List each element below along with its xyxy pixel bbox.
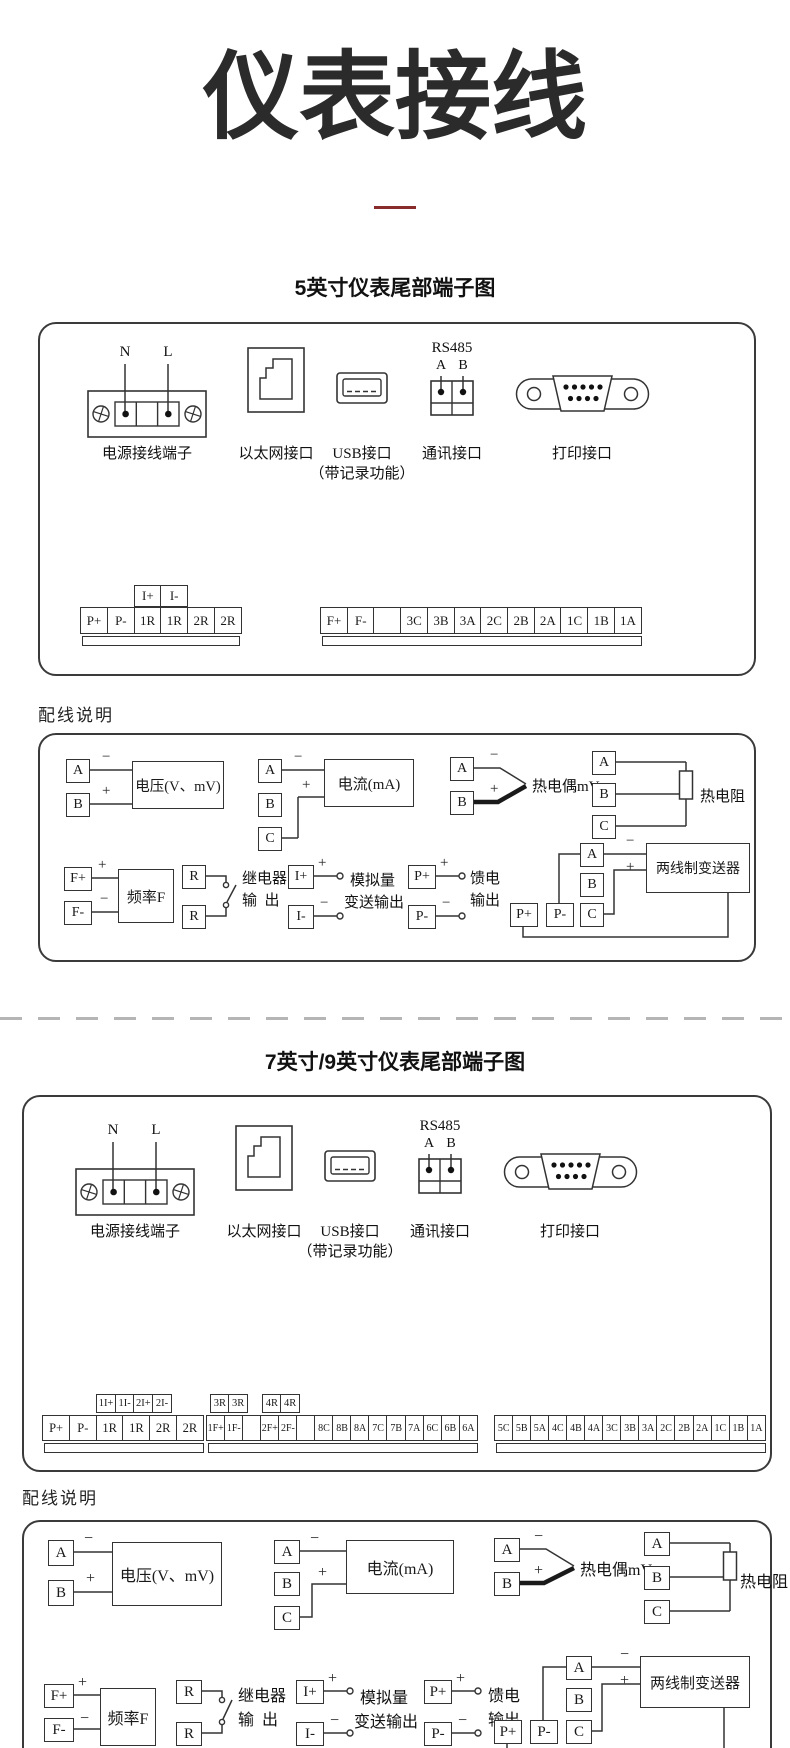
terminal-strip-base xyxy=(496,1443,766,1453)
wiring-terminal: A xyxy=(450,757,474,781)
terminal-cell: 3C xyxy=(602,1415,621,1441)
terminal-cell: P- xyxy=(69,1415,97,1441)
terminal-cell: 7B xyxy=(386,1415,405,1441)
terminal-cell: 2A xyxy=(534,607,562,634)
minus-sign: − xyxy=(294,749,302,766)
usb-label: USB接口 xyxy=(327,442,397,463)
wiring-terminal: F+ xyxy=(64,867,92,891)
terminal-cell: 2F- xyxy=(278,1415,297,1441)
db9-print-port-icon xyxy=(503,1148,638,1194)
usb-label: USB接口 xyxy=(315,1220,385,1241)
print-label: 打印接口 xyxy=(532,442,632,463)
wiring-terminal: B xyxy=(566,1688,592,1712)
ethernet-label: 以太网接口 xyxy=(226,442,326,463)
plus-sign: + xyxy=(102,783,110,800)
terminal-cell: 2B xyxy=(507,607,535,634)
power-l-label: L xyxy=(136,1122,176,1139)
plus-sign: + xyxy=(440,855,448,872)
wiring-terminal: C xyxy=(566,1720,592,1744)
terminal-cell: 8A xyxy=(350,1415,369,1441)
terminal-panel-5inch: N L RS485 A xyxy=(38,322,756,676)
usb-port-icon xyxy=(324,1150,376,1182)
thermocouple-label: 热电偶mV xyxy=(532,775,600,796)
terminal-cell: 6A xyxy=(459,1415,478,1441)
terminal-cell: 8C xyxy=(314,1415,333,1441)
terminal-cell: 5C xyxy=(494,1415,513,1441)
terminal-cell: 1F- xyxy=(224,1415,243,1441)
terminal-cell: 6C xyxy=(423,1415,442,1441)
plus-sign: + xyxy=(490,781,498,798)
plus-sign: + xyxy=(302,777,310,794)
db9-print-port-icon xyxy=(515,370,650,416)
minus-sign: − xyxy=(534,1528,543,1546)
terminal-cell: 2C xyxy=(480,607,508,634)
power-n-label: N xyxy=(105,344,145,361)
power-terminal-icon xyxy=(87,390,207,438)
terminal-cell: 4R xyxy=(280,1394,300,1413)
minus-sign: − xyxy=(458,1712,467,1730)
relay-label-line1: 继电器 xyxy=(242,867,287,888)
section-5inch-title: 5英寸仪表尾部端子图 xyxy=(0,272,790,302)
wiring-terminal: I- xyxy=(296,1722,324,1746)
terminal-row-current-loop: 1I+1I-2I+2I- xyxy=(96,1394,172,1413)
terminal-cell: 1R xyxy=(96,1415,124,1441)
wiring-terminal: P+ xyxy=(408,865,436,889)
minus-sign: − xyxy=(320,895,328,912)
ethernet-port-icon xyxy=(235,1125,293,1191)
plus-sign: + xyxy=(534,1562,543,1580)
terminal-cell: 7C xyxy=(368,1415,387,1441)
section-divider xyxy=(0,1017,790,1020)
terminal-cell: 1R xyxy=(160,607,188,634)
wiring-terminal: B xyxy=(580,873,604,897)
terminal-cell: 2I- xyxy=(152,1394,172,1413)
wiring-terminal: P- xyxy=(408,905,436,929)
section-79inch-title: 7英寸/9英寸仪表尾部端子图 xyxy=(0,1046,790,1076)
terminal-cell: 8B xyxy=(332,1415,351,1441)
minus-sign: − xyxy=(102,749,110,766)
ethernet-port-icon xyxy=(247,347,305,413)
analog-label-line2: 变送输出 xyxy=(354,1708,418,1732)
terminal-strip-2: 1F+1F-2F+2F-8C8B8A7C7B7A6C6B6A xyxy=(206,1415,478,1441)
wiring-terminal: B xyxy=(258,793,282,817)
terminal-cell: 1R xyxy=(122,1415,150,1441)
current-box: 电流(mA) xyxy=(346,1540,454,1594)
ethernet-label: 以太网接口 xyxy=(214,1220,314,1241)
plus-sign: + xyxy=(456,1670,465,1688)
terminal-cell: 1B xyxy=(587,607,615,634)
transmitter-box: 两线制变送器 xyxy=(646,843,750,893)
connector-row-5inch: N L RS485 A xyxy=(42,336,752,486)
terminal-row-relay3: 3R3R xyxy=(210,1394,248,1413)
terminal-cell: 7A xyxy=(405,1415,424,1441)
minus-sign: − xyxy=(80,1710,89,1728)
plus-sign: + xyxy=(86,1570,95,1588)
plus-sign: + xyxy=(78,1674,87,1692)
terminal-cell: 1I- xyxy=(115,1394,135,1413)
analog-label-line1: 模拟量 xyxy=(360,1684,408,1708)
wiring-terminal: B xyxy=(592,783,616,807)
terminal-cell: P- xyxy=(107,607,135,634)
analog-label-line2: 变送输出 xyxy=(344,891,404,912)
plus-sign: + xyxy=(626,859,634,876)
terminal-cell: 1I+ xyxy=(96,1394,116,1413)
wiring-terminal: F- xyxy=(64,901,92,925)
wiring-terminal: P- xyxy=(424,1722,452,1746)
terminal-cell: 2R xyxy=(187,607,215,634)
terminal-cell: 1B xyxy=(729,1415,748,1441)
wiring-terminal: R xyxy=(182,905,206,929)
document-page: 仪表接线 5英寸仪表尾部端子图 N L xyxy=(0,0,790,1748)
terminal-cell xyxy=(296,1415,315,1441)
terminal-strip-base xyxy=(44,1443,204,1453)
wiring-terminal: B xyxy=(450,791,474,815)
terminal-cell: 3B xyxy=(620,1415,639,1441)
wiring-terminal: A xyxy=(274,1540,300,1564)
usb-sublabel: （带记录功能） xyxy=(297,462,427,483)
terminal-cell: 5B xyxy=(512,1415,531,1441)
rs485-title: RS485 xyxy=(417,340,487,357)
feed-label-line2: 输出 xyxy=(470,889,500,910)
wiring-terminal: F+ xyxy=(44,1684,74,1708)
terminal-cell: 4B xyxy=(566,1415,585,1441)
terminal-cell: P+ xyxy=(80,607,108,634)
terminal-cell: I+ xyxy=(134,585,162,607)
terminal-cell: 3R xyxy=(210,1394,230,1413)
frequency-box: 频率F xyxy=(118,869,174,923)
plus-sign: + xyxy=(98,857,106,874)
terminal-cell: 1R xyxy=(134,607,162,634)
wiring-terminal: B xyxy=(644,1566,670,1590)
wiring-terminal: C xyxy=(644,1600,670,1624)
terminal-cell: 3C xyxy=(400,607,428,634)
wiring-terminal: P+ xyxy=(494,1720,522,1744)
rs485-terminal-icon xyxy=(418,1158,462,1194)
wiring-terminal: A xyxy=(592,751,616,775)
wiring-terminal: P+ xyxy=(510,903,538,927)
plus-sign: + xyxy=(318,855,326,872)
power-terminal-label: 电源接线端子 xyxy=(77,442,217,463)
voltage-box: 电压(V、mV) xyxy=(132,761,224,809)
minus-sign: − xyxy=(310,1530,319,1548)
relay-label-line2: 输 出 xyxy=(238,1706,278,1730)
terminal-cell: 4A xyxy=(584,1415,603,1441)
plus-sign: + xyxy=(328,1670,337,1688)
wiring-terminal: A xyxy=(494,1538,520,1562)
power-l-label: L xyxy=(148,344,188,361)
wiring-terminal: C xyxy=(274,1606,300,1630)
wiring-terminal: A xyxy=(644,1532,670,1556)
terminal-cell: 1C xyxy=(711,1415,730,1441)
wiring-terminal: I+ xyxy=(296,1680,324,1704)
terminal-strip-3: 5C5B5A4C4B4A3C3B3A2C2B2A1C1B1A xyxy=(494,1415,766,1441)
terminal-cell: 2F+ xyxy=(260,1415,279,1441)
terminal-cell: F- xyxy=(347,607,375,634)
connector-row-79inch: N L RS485 A xyxy=(30,1114,740,1264)
terminal-cell: 3A xyxy=(638,1415,657,1441)
current-box: 电流(mA) xyxy=(324,759,414,807)
terminal-strip-left: P+P-1R1R2R2R xyxy=(80,607,242,634)
terminal-cell: F+ xyxy=(320,607,348,634)
terminal-cell: 2R xyxy=(214,607,242,634)
thermocouple-label: 热电偶mV xyxy=(580,1556,652,1580)
comm-label: 通讯接口 xyxy=(412,442,492,463)
terminal-cell: 2R xyxy=(176,1415,204,1441)
wiring-terminal: C xyxy=(580,903,604,927)
print-label: 打印接口 xyxy=(520,1220,620,1241)
wiring-panel-79inch: A B − + 电压(V、mV) A B C − + 电流(mA) A B − … xyxy=(22,1520,772,1748)
wiring-terminal: B xyxy=(66,793,90,817)
wiring-note-5inch: 配线说明 xyxy=(38,701,114,726)
feed-label-line1: 馈电 xyxy=(488,1682,520,1706)
minus-sign: − xyxy=(620,1646,629,1664)
terminal-cell: 2R xyxy=(149,1415,177,1441)
terminal-row-current-loop: I+I- xyxy=(134,585,188,607)
terminal-cell: 2C xyxy=(656,1415,675,1441)
terminal-cell: 3R xyxy=(228,1394,248,1413)
minus-sign: − xyxy=(442,895,450,912)
wiring-terminal: B xyxy=(494,1572,520,1596)
relay-label-line1: 继电器 xyxy=(238,1682,286,1706)
wiring-terminal: R xyxy=(176,1722,202,1746)
terminal-cell: 3A xyxy=(454,607,482,634)
rtd-label: 热电阻 xyxy=(740,1568,788,1592)
frequency-box: 频率F xyxy=(100,1688,156,1746)
wiring-terminal: I- xyxy=(288,905,314,929)
terminal-cell: 3B xyxy=(427,607,455,634)
rs485-b-label: B xyxy=(436,1136,466,1152)
voltage-box: 电压(V、mV) xyxy=(112,1542,222,1606)
wiring-terminal: P+ xyxy=(424,1680,452,1704)
terminal-cell: I- xyxy=(160,585,188,607)
minus-sign: − xyxy=(330,1712,339,1730)
rs485-title: RS485 xyxy=(405,1118,475,1135)
wiring-terminal: R xyxy=(176,1680,202,1704)
terminal-strip-base xyxy=(82,636,240,646)
feed-label-line1: 馈电 xyxy=(470,867,500,888)
terminal-cell: P+ xyxy=(42,1415,70,1441)
wiring-terminal: F- xyxy=(44,1718,74,1742)
power-terminal-icon xyxy=(75,1168,195,1216)
terminal-cell: 2A xyxy=(693,1415,712,1441)
minus-sign: − xyxy=(490,747,498,764)
minus-sign: − xyxy=(84,1530,93,1548)
wiring-terminal: A xyxy=(566,1656,592,1680)
page-title: 仪表接线 xyxy=(0,40,790,155)
plus-sign: + xyxy=(620,1672,629,1690)
rs485-terminal-icon xyxy=(430,380,474,416)
terminal-strip-1: P+P-1R1R2R2R xyxy=(42,1415,204,1441)
wiring-terminal: C xyxy=(592,815,616,839)
terminal-strip-right: F+F-3C3B3A2C2B2A1C1B1A xyxy=(320,607,642,634)
wiring-terminal: A xyxy=(258,759,282,783)
wiring-terminal: I+ xyxy=(288,865,314,889)
terminal-cell: 1A xyxy=(747,1415,766,1441)
analog-label-line1: 模拟量 xyxy=(350,869,395,890)
terminal-cell: 1F+ xyxy=(206,1415,225,1441)
plus-sign: + xyxy=(318,1564,327,1582)
power-terminal-label: 电源接线端子 xyxy=(65,1220,205,1241)
terminal-cell: 5A xyxy=(530,1415,549,1441)
wiring-terminal: C xyxy=(258,827,282,851)
rs485-b-label: B xyxy=(448,358,478,374)
terminal-row-relay4: 4R4R xyxy=(262,1394,300,1413)
wiring-terminal: A xyxy=(580,843,604,867)
usb-sublabel: （带记录功能） xyxy=(285,1240,415,1261)
minus-sign: − xyxy=(100,891,108,908)
wiring-terminal: B xyxy=(48,1580,74,1606)
wiring-terminal: B xyxy=(274,1572,300,1596)
terminal-cell: 2I+ xyxy=(133,1394,153,1413)
terminal-strip-base xyxy=(208,1443,478,1453)
minus-sign: − xyxy=(626,833,634,850)
wiring-terminal: R xyxy=(182,865,206,889)
rtd-label: 热电阻 xyxy=(700,785,745,806)
wiring-terminal: P- xyxy=(530,1720,558,1744)
terminal-cell xyxy=(242,1415,261,1441)
terminal-cell: 4C xyxy=(548,1415,567,1441)
terminal-panel-79inch: N L RS485 A xyxy=(22,1095,772,1472)
terminal-cell: 1A xyxy=(614,607,642,634)
terminal-cell: 4R xyxy=(262,1394,282,1413)
transmitter-box: 两线制变送器 xyxy=(640,1656,750,1708)
comm-label: 通讯接口 xyxy=(400,1220,480,1241)
terminal-strip-base xyxy=(322,636,642,646)
terminal-cell: 6B xyxy=(441,1415,460,1441)
wiring-terminal: A xyxy=(66,759,90,783)
power-n-label: N xyxy=(93,1122,133,1139)
wiring-terminal: P- xyxy=(546,903,574,927)
terminal-cell: 2B xyxy=(674,1415,693,1441)
usb-port-icon xyxy=(336,372,388,404)
wiring-note-79inch: 配线说明 xyxy=(22,1484,98,1509)
wiring-terminal: A xyxy=(48,1540,74,1566)
wiring-panel-5inch: A B − + 电压(V、mV) A B C − + 电流(mA) A B − … xyxy=(38,733,756,962)
terminal-cell: 1C xyxy=(560,607,588,634)
terminal-cell xyxy=(373,607,401,634)
relay-label-line2: 输 出 xyxy=(242,889,280,910)
title-accent-line xyxy=(374,206,416,209)
